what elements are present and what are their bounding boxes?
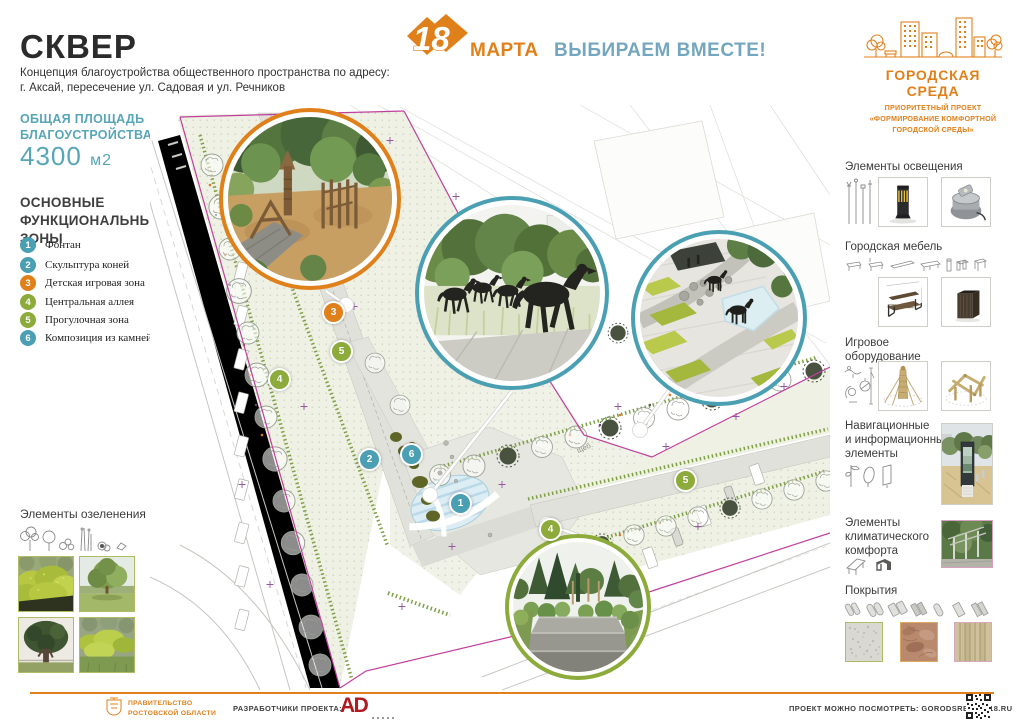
developer-logo: AD <box>340 694 367 718</box>
svg-text:18: 18 <box>413 20 450 57</box>
poster-page: СКВЕР Концепция благоустройства обществе… <box>0 0 1024 723</box>
plan-marker-zone-3: 3 <box>322 301 345 324</box>
brand-subtitle-line: ГОРОДСКОЙ СРЕДЫ» <box>858 124 1008 135</box>
surfaces-title: Покрытия <box>845 585 897 599</box>
zone-label: Прогулочная зона <box>45 314 129 326</box>
zone-number-badge: 2 <box>20 257 36 273</box>
developer-logo-tagline <box>372 706 412 709</box>
wood-swatch <box>954 622 992 662</box>
rostov-region-emblem-icon <box>106 697 122 716</box>
plan-marker-zone-4b: 4 <box>539 518 562 541</box>
campaign-slogan: ВЫБИРАЕМ ВМЕСТЕ! <box>554 40 766 62</box>
bollard-light-photo <box>878 177 928 227</box>
zone-label: Композиция из камней <box>45 332 152 344</box>
zone-legend-item: 6 Композиция из камней <box>20 330 152 346</box>
dark-tree-photo <box>18 617 74 673</box>
page-subtitle: Концепция благоустройства общественного … <box>20 66 390 96</box>
government-label: ПРАВИТЕЛЬСТВО РОСТОВСКОЙ ОБЛАСТИ <box>128 699 216 719</box>
lighting-title: Элементы освещения <box>845 161 963 175</box>
climate-title: Элементы климатического комфорта <box>845 517 929 558</box>
total-area-label: ОБЩАЯ ПЛОЩАДЬ БЛАГОУСТРОЙСТВА: <box>20 112 157 143</box>
shrub-row-photo <box>79 617 135 673</box>
furniture-sketch-icons <box>845 256 995 274</box>
walkway-render-inset <box>505 534 651 680</box>
plan-marker-zone-5b: 5 <box>674 469 697 492</box>
signage-icons <box>845 463 909 489</box>
gorodskaya-sreda-logo: ГОРОДСКАЯ СРЕДА ПРИОРИТЕТНЫЙ ПРОЕКТ «ФОР… <box>858 14 1008 135</box>
plan-marker-zone-5: 5 <box>330 340 353 363</box>
city-skyline-icon <box>862 14 1004 60</box>
bench-photo <box>878 277 928 327</box>
zone-number-badge: 1 <box>20 237 36 253</box>
zone-legend-item: 4 Центральная аллея <box>20 294 134 310</box>
pergola-photo <box>941 520 993 568</box>
zone-legend-item: 5 Прогулочная зона <box>20 312 129 328</box>
developers-label: РАЗРАБОТЧИКИ ПРОЕКТА: <box>233 704 342 713</box>
footer-divider <box>30 692 994 694</box>
qr-code <box>966 694 991 719</box>
zone-legend-item: 2 Скульптура коней <box>20 257 129 273</box>
climbing-pole-photo <box>878 361 928 411</box>
brand-title: ГОРОДСКАЯ СРЕДА <box>858 67 1008 99</box>
zone-number-badge: 3 <box>20 275 36 291</box>
zone-legend-item: 3 Детская игровая зона <box>20 275 145 291</box>
pergola-icons <box>845 556 901 576</box>
zone-label: Центральная аллея <box>45 296 134 308</box>
light-pole-icons <box>845 176 875 228</box>
greenery-title: Элементы озеленения <box>20 507 146 521</box>
hedge-photo <box>18 556 74 612</box>
zone-number-badge: 4 <box>20 294 36 310</box>
march-18-logo-icon: 18 <box>406 14 468 64</box>
brand-subtitle-line: ПРИОРИТЕТНЫЙ ПРОЕКТ <box>858 102 1008 113</box>
zone-number-badge: 6 <box>20 330 36 346</box>
playground-render-inset <box>219 108 401 290</box>
walkway-photo <box>513 542 643 672</box>
plan-marker-zone-2: 2 <box>358 448 381 471</box>
granite-swatch <box>845 622 883 662</box>
paving-icons <box>843 598 993 620</box>
plaza-render-inset <box>631 230 807 406</box>
zone-number-badge: 5 <box>20 312 36 328</box>
plan-marker-zone-1: 1 <box>449 492 472 515</box>
campaign-month: МАРТА <box>470 40 539 62</box>
greenery-sketch-icons <box>18 524 136 556</box>
lawn-tree-photo <box>79 556 135 612</box>
subtitle-line: Концепция благоустройства общественного … <box>20 66 390 81</box>
zone-label: Фонтан <box>45 239 81 251</box>
plan-marker-zone-6: 6 <box>400 443 423 466</box>
horse-sculptures-render-inset <box>415 196 609 390</box>
campaign-banner: 18 МАРТА ВЫБИРАЕМ ВМЕСТЕ! <box>406 14 806 64</box>
plaza-photo <box>640 239 798 397</box>
master-plan: щеб. <box>150 105 830 690</box>
play-equipment-icons <box>843 362 877 408</box>
total-area-value: 4300 м2 <box>20 141 112 172</box>
wooden-frame-photo <box>941 361 991 411</box>
plan-marker-zone-4: 4 <box>268 368 291 391</box>
navigation-title: Навигационные и информационные элементы <box>845 420 951 461</box>
zone-legend-item: 1 Фонтан <box>20 237 81 253</box>
zone-label: Скульптура коней <box>45 259 129 271</box>
horse-sculptures-photo <box>424 205 600 381</box>
zone-label: Детская игровая зона <box>45 277 145 289</box>
stone-swatch <box>900 622 938 662</box>
subtitle-line: г. Аксай, пересечение ул. Садовая и ул. … <box>20 81 390 96</box>
info-kiosk-photo <box>941 423 993 505</box>
ground-light-photo <box>941 177 991 227</box>
page-title: СКВЕР <box>20 28 137 66</box>
furniture-title: Городская мебель <box>845 241 942 255</box>
playground-photo <box>228 117 392 281</box>
litter-bin-photo <box>941 277 991 327</box>
brand-subtitle-line: «ФОРМИРОВАНИЕ КОМФОРТНОЙ <box>858 113 1008 124</box>
